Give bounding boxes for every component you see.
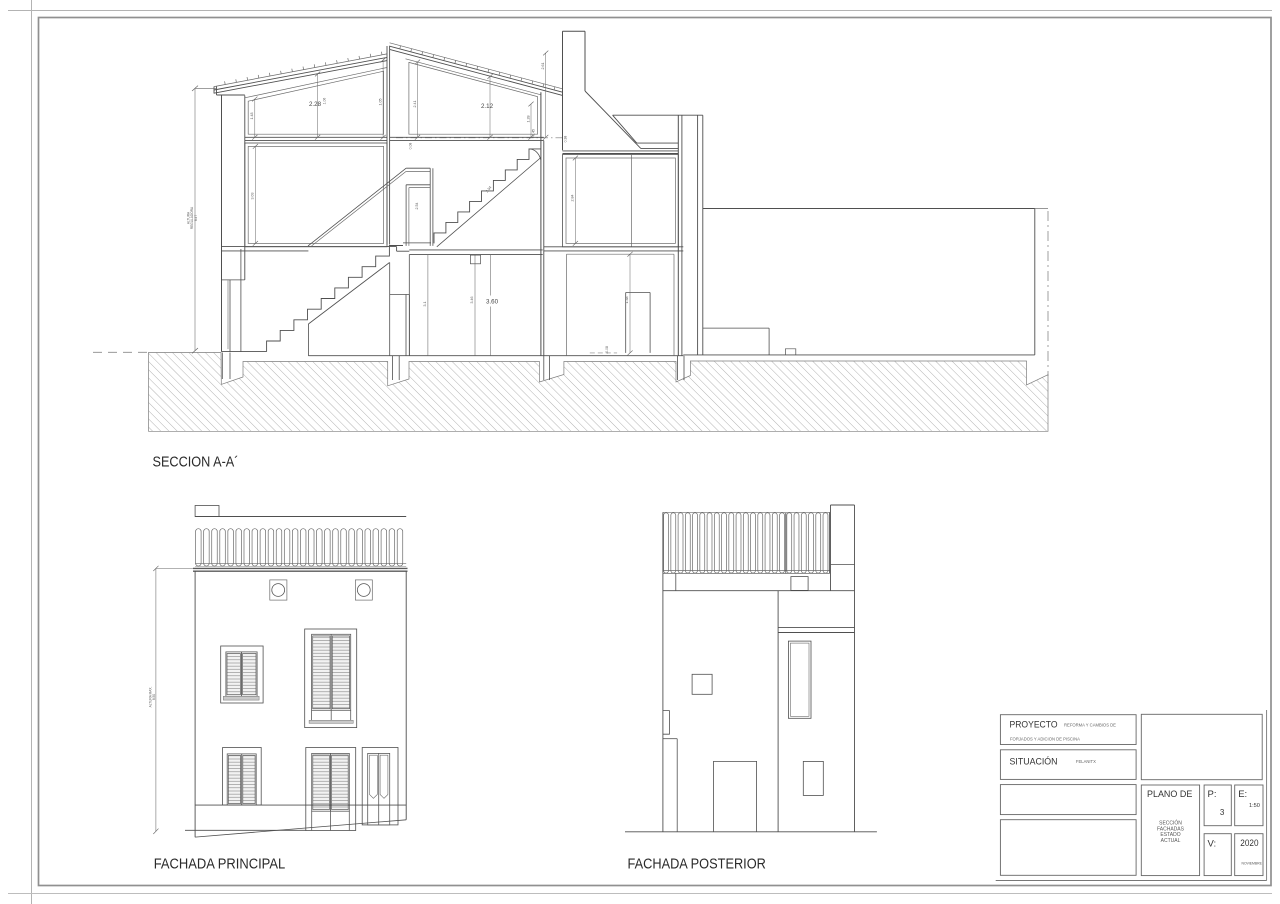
svg-text:FACHADA PRINCIPAL: FACHADA PRINCIPAL (154, 856, 286, 872)
svg-text:0.08: 0.08 (409, 143, 413, 150)
svg-text:SECCION A-A´: SECCION A-A´ (153, 455, 239, 471)
svg-text:-0.08: -0.08 (605, 346, 609, 354)
svg-text:3.1: 3.1 (423, 302, 427, 307)
svg-text:2.54: 2.54 (415, 203, 419, 210)
svg-text:-0.45: -0.45 (532, 129, 536, 137)
svg-text:E:: E: (1238, 789, 1247, 800)
svg-text:FELANITX: FELANITX (1076, 759, 1096, 764)
svg-text:1.28: 1.28 (526, 116, 530, 123)
svg-text:3.46: 3.46 (470, 297, 474, 304)
svg-text:1.48: 1.48 (250, 113, 254, 120)
svg-text:1:50: 1:50 (1249, 803, 1260, 809)
svg-text:SITUACIÓN: SITUACIÓN (1010, 755, 1058, 766)
svg-text:FACHADA POSTERIOR: FACHADA POSTERIOR (628, 856, 766, 872)
svg-text:3.60: 3.60 (486, 299, 499, 306)
svg-text:2020: 2020 (1240, 838, 1258, 849)
svg-text:2.12: 2.12 (481, 103, 494, 110)
svg-text:FORJADOS Y ADICION DE PISCINA: FORJADOS Y ADICION DE PISCINA (1010, 736, 1080, 741)
svg-text:P:: P: (1208, 789, 1217, 800)
svg-text:2.84: 2.84 (571, 195, 575, 202)
svg-text:0.38: 0.38 (564, 136, 568, 143)
svg-text:3: 3 (1220, 808, 1225, 817)
svg-text:8.50: 8.50 (152, 694, 156, 700)
svg-text:1.38: 1.38 (625, 297, 629, 304)
svg-text:REFORMA Y CAMBIOS DE: REFORMA Y CAMBIOS DE (1064, 722, 1116, 727)
svg-text:ACTUAL: ACTUAL (1161, 838, 1181, 844)
svg-text:PROYECTO: PROYECTO (1010, 719, 1058, 730)
svg-text:2.28: 2.28 (309, 101, 322, 108)
svg-text:2.41: 2.41 (413, 101, 417, 108)
svg-text:1.06: 1.06 (323, 98, 327, 105)
svg-text:8.47: 8.47 (194, 215, 198, 221)
svg-text:3.03: 3.03 (250, 193, 254, 200)
svg-text:NOVIEMBRE: NOVIEMBRE (1242, 862, 1263, 866)
svg-text:1.05: 1.05 (378, 99, 382, 106)
svg-text:PLANO DE: PLANO DE (1147, 789, 1192, 799)
svg-text:2.61: 2.61 (541, 63, 545, 70)
svg-text:V:: V: (1208, 839, 1217, 850)
